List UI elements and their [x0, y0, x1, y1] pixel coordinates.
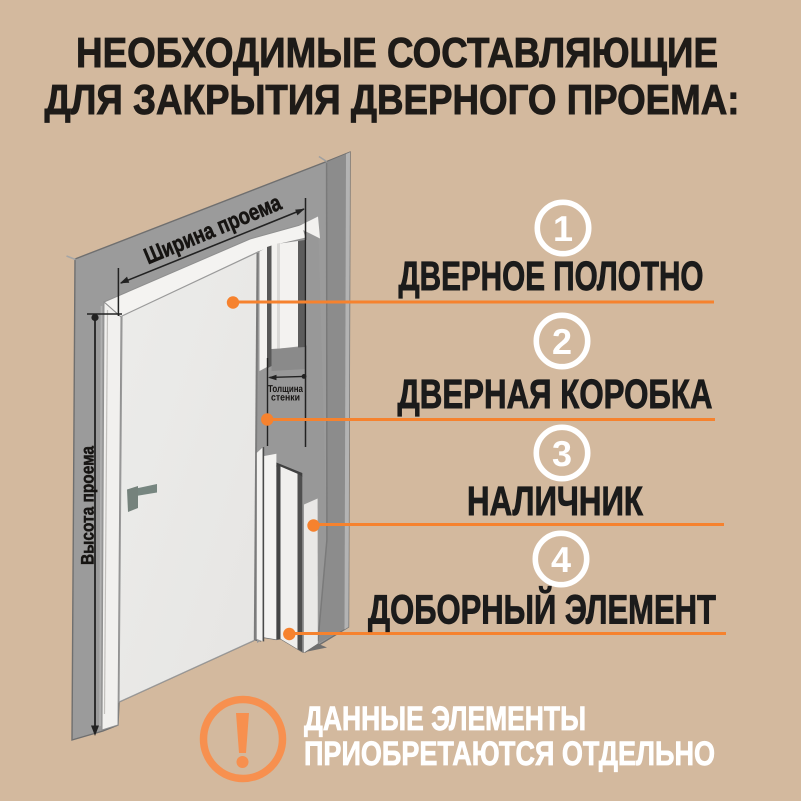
svg-text:ДВЕРНАЯ КОРОБКА: ДВЕРНАЯ КОРОБКА	[398, 371, 713, 417]
svg-text:4: 4	[551, 539, 571, 580]
svg-text:НЕОБХОДИМЫЕ СОСТАВЛЯЮЩИЕ: НЕОБХОДИМЫЕ СОСТАВЛЯЮЩИЕ	[76, 29, 718, 76]
svg-text:3: 3	[552, 433, 572, 474]
svg-text:ДАННЫЕ ЭЛЕМЕНТЫ: ДАННЫЕ ЭЛЕМЕНТЫ	[304, 700, 586, 738]
svg-text:1: 1	[553, 208, 573, 249]
svg-text:стенки: стенки	[271, 393, 300, 404]
svg-text:ДВЕРНОЕ ПОЛОТНО: ДВЕРНОЕ ПОЛОТНО	[399, 253, 704, 299]
svg-text:НАЛИЧНИК: НАЛИЧНИК	[467, 478, 644, 524]
svg-text:ДЛЯ ЗАКРЫТИЯ ДВЕРНОГО ПРОЕМА:: ДЛЯ ЗАКРЫТИЯ ДВЕРНОГО ПРОЕМА:	[45, 76, 740, 123]
svg-text:ПРИОБРЕТАЮТСЯ ОТДЕЛЬНО: ПРИОБРЕТАЮТСЯ ОТДЕЛЬНО	[304, 735, 715, 773]
svg-text:Высота проема: Высота проема	[78, 445, 98, 565]
svg-text:ДОБОРНЫЙ ЭЛЕМЕНТ: ДОБОРНЫЙ ЭЛЕМЕНТ	[368, 586, 716, 633]
svg-text:2: 2	[552, 321, 572, 362]
